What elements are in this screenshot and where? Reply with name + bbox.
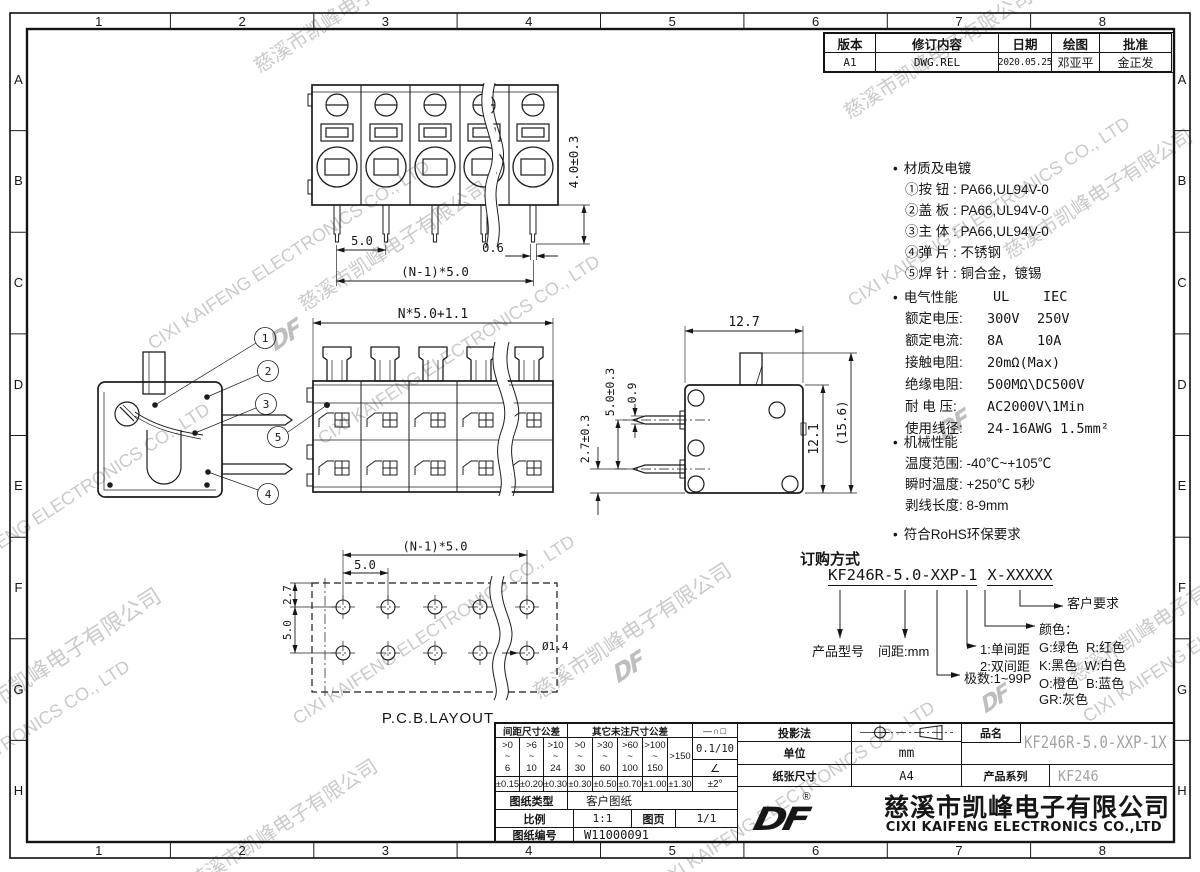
rear-view: N*5.0+1.1 xyxy=(307,307,553,496)
svg-text:2: 2 xyxy=(265,365,272,378)
pcb-dimensions: (N-1)*5.0 5.0 2.7 5.0 Ø1.4 xyxy=(281,540,569,654)
tol-value: ±1.00 xyxy=(642,776,668,792)
svg-text:0.9: 0.9 xyxy=(625,383,639,404)
svg-text:G: G xyxy=(1177,682,1187,697)
electrical-notes: •电气性能 UL IEC 额定电压:300V250V 额定电流:8A10A 接触… xyxy=(893,287,1109,440)
tol-group-other: 其它未注尺寸公差 xyxy=(567,723,693,738)
svg-text:12.1: 12.1 xyxy=(807,423,822,454)
bullet: • xyxy=(893,161,898,176)
svg-text:2.7±0.3: 2.7±0.3 xyxy=(578,415,592,464)
pcb-layout-drawing: (N-1)*5.0 5.0 2.7 5.0 Ø1.4 P.C.B.LAYOUT xyxy=(280,538,590,738)
svg-text:1: 1 xyxy=(262,332,269,345)
tol-value: ±0.50 xyxy=(592,776,618,792)
svg-text:Ø1.4: Ø1.4 xyxy=(542,640,569,653)
mechanical-item: 温度范围: -40℃~+105℃ xyxy=(893,453,1051,474)
company-logo: DF® xyxy=(750,791,811,838)
company-name-en: CIXI KAIFENG ELECTRONICS CO.,LTD xyxy=(886,820,1162,835)
doc-type-value: 客户图纸 xyxy=(567,791,738,810)
tol-range: >60 ~ 100 xyxy=(617,737,643,777)
tol-value: ±0.30 xyxy=(543,776,568,792)
electrical-title: 电气性能 xyxy=(904,290,958,305)
svg-text:5.0: 5.0 xyxy=(351,234,373,248)
tol-flatness: 0.1/10 xyxy=(692,737,738,760)
svg-text:5: 5 xyxy=(669,14,676,29)
doc-page-value: 1/1 xyxy=(675,809,738,828)
electrical-row: 绝缘电阻:500MΩ\DC500V xyxy=(893,374,1109,396)
electrical-row: 额定电压:300V250V xyxy=(893,308,1109,330)
svg-text:(N-1)*5.0: (N-1)*5.0 xyxy=(401,264,469,279)
material-title: 材质及电镀 xyxy=(904,161,972,176)
revision-content: DWG.REL xyxy=(875,52,999,72)
ordering-pitch-label: 间距:mm xyxy=(878,641,929,660)
projection-label: 投影法 xyxy=(737,723,852,742)
svg-text:3: 3 xyxy=(382,843,389,858)
mechanical-title: 机械性能 xyxy=(904,435,958,450)
doc-type-label: 图纸类型 xyxy=(495,791,568,810)
mechanical-item: 瞬时温度: +250℃ 5秒 xyxy=(893,474,1051,495)
revision-header-date: 日期 xyxy=(998,33,1052,53)
col-ul: UL xyxy=(993,287,1009,308)
svg-text:1: 1 xyxy=(95,14,102,29)
unit-label: 单位 xyxy=(737,741,852,765)
product-name-label: 品名 xyxy=(962,724,1021,743)
product-series-label: 产品系列 xyxy=(961,764,1050,787)
svg-text:N*5.0+1.1: N*5.0+1.1 xyxy=(398,307,468,322)
tol-value: ±0.30 xyxy=(567,776,593,792)
svg-text:5.0: 5.0 xyxy=(281,620,294,640)
tol-range: >10 ~ 24 xyxy=(543,737,568,777)
tol-range: >30 ~ 60 xyxy=(592,737,618,777)
pcb-layout-label: P.C.B.LAYOUT xyxy=(382,710,494,727)
break-line xyxy=(482,83,500,247)
material-item: ①按 钮 : PA66,UL94V-0 xyxy=(893,179,1049,200)
part-callouts: 1 2 3 5 4 xyxy=(152,328,330,505)
svg-text:D: D xyxy=(1177,377,1186,392)
ordering-color-option: G:绿色 R:红色 xyxy=(1039,637,1125,656)
doc-number-value: W11000091 xyxy=(573,827,738,843)
revision-header-content: 修订内容 xyxy=(875,33,999,53)
doc-scale-value: 1:1 xyxy=(573,809,632,828)
svg-text:5: 5 xyxy=(669,843,676,858)
material-item: ④弹 片 : 不锈钢 xyxy=(893,242,1049,263)
drawing-sheet: 慈溪市凯峰电子有限公司 CIXI KAIFENG ELECTRONICS CO.… xyxy=(0,0,1200,872)
revision-version: A1 xyxy=(824,52,876,72)
section-view xyxy=(98,352,292,497)
svg-text:E: E xyxy=(14,478,23,493)
svg-text:(15.6): (15.6) xyxy=(834,400,849,445)
tol-range: >150 xyxy=(667,737,693,777)
electrical-row: 额定电流:8A10A xyxy=(893,330,1109,352)
tol-range: >100 ~ 150 xyxy=(642,737,668,777)
product-name-value: KF246R-5.0-XXP-1X xyxy=(1024,733,1167,753)
company-name-cn: 慈溪市凯峰电子有限公司 xyxy=(884,788,1170,824)
svg-text:D: D xyxy=(14,377,23,392)
svg-text:8: 8 xyxy=(1099,843,1106,858)
svg-text:3: 3 xyxy=(263,398,270,411)
mechanical-item: 剥线长度: 8-9mm xyxy=(893,495,1051,516)
svg-text:4: 4 xyxy=(525,14,532,29)
unit-value: mm xyxy=(851,741,962,765)
col-iec: IEC xyxy=(1043,287,1067,308)
svg-text:4: 4 xyxy=(265,488,272,501)
tol-value: ±0.20 xyxy=(519,776,544,792)
svg-text:5: 5 xyxy=(275,431,282,444)
svg-text:G: G xyxy=(13,682,23,697)
product-series-value: KF246 xyxy=(1049,764,1175,787)
svg-text:6: 6 xyxy=(812,843,819,858)
title-block: 间距尺寸公差 其它未注尺寸公差 >0 ~ 6 >6 ~ 10 >10 ~ 24 … xyxy=(494,722,1174,842)
revision-date: 2020.05.25 xyxy=(998,52,1052,72)
revision-table: 版本 修订内容 日期 绘图 批准 A1 DWG.REL 2020.05.25 邓… xyxy=(823,32,1174,73)
bullet: • xyxy=(893,290,898,305)
bullet: • xyxy=(893,527,898,542)
tol-range: >0 ~ 6 xyxy=(495,737,520,777)
product-name-area: 品名 KF246R-5.0-XXP-1X xyxy=(961,723,1175,765)
projection-symbol xyxy=(851,723,962,742)
svg-text:C: C xyxy=(14,275,23,290)
front-view-drawing: 5.0 0.6 (N-1)*5.0 4.0±0.3 xyxy=(300,78,610,292)
material-notes: •材质及电镀 ①按 钮 : PA66,UL94V-0 ②盖 板 : PA66,U… xyxy=(893,158,1049,284)
svg-text:5.0±0.3: 5.0±0.3 xyxy=(603,368,617,417)
tol-symbols-geo: —∩□ xyxy=(692,723,738,738)
tol-angle-value: ±2° xyxy=(692,776,738,792)
ordering-spacing2-label: 2:双间距 xyxy=(980,656,1030,675)
svg-text:2: 2 xyxy=(238,14,245,29)
svg-text:4: 4 xyxy=(525,843,532,858)
tol-range: >0 ~ 30 xyxy=(567,737,593,777)
tol-value: ±1.30 xyxy=(667,776,693,792)
tol-value: ±0.70 xyxy=(617,776,643,792)
doc-scale-label: 比例 xyxy=(495,809,574,828)
material-item: ⑤焊 针 : 铜合金，镀锡 xyxy=(893,263,1049,284)
electrical-row: 接触电阻:20mΩ(Max) xyxy=(893,352,1109,374)
revision-header-version: 版本 xyxy=(824,33,876,53)
svg-text:7: 7 xyxy=(955,843,962,858)
mechanical-notes: •机械性能 温度范围: -40℃~+105℃ 瞬时温度: +250℃ 5秒 剥线… xyxy=(893,432,1051,516)
material-item: ②盖 板 : PA66,UL94V-0 xyxy=(893,200,1049,221)
revision-approved: 金正发 xyxy=(1099,52,1172,72)
svg-text:0.6: 0.6 xyxy=(482,241,504,255)
tol-group-pitch: 间距尺寸公差 xyxy=(495,723,568,738)
ordering-section: 订购方式 KF246R-5.0-XXP-1X-XXXXX 产品型号 间距:mm … xyxy=(790,542,1174,717)
svg-text:5.0: 5.0 xyxy=(354,558,376,572)
svg-text:8: 8 xyxy=(1099,14,1106,29)
paper-size-label: 纸张尺寸 xyxy=(737,764,852,787)
svg-text:A: A xyxy=(14,72,23,87)
bullet: • xyxy=(893,435,898,450)
ordering-color-option: K:黑色 W:白色 xyxy=(1039,655,1126,674)
ordering-model-label: 产品型号 xyxy=(812,641,864,660)
revision-drawn: 邓亚平 xyxy=(1051,52,1100,72)
ordering-color-option: GR:灰色 xyxy=(1039,689,1088,708)
svg-text:B: B xyxy=(14,173,23,188)
svg-text:B: B xyxy=(1178,173,1187,188)
terminal-positions xyxy=(317,94,553,187)
svg-text:4.0±0.3: 4.0±0.3 xyxy=(566,136,581,189)
doc-number-label: 图纸编号 xyxy=(495,827,574,843)
svg-text:F: F xyxy=(1178,580,1186,595)
svg-text:F: F xyxy=(15,580,23,595)
svg-text:2: 2 xyxy=(238,843,245,858)
side-view: 12.7 5.0±0.3 0.9 12.1 (15.6) 2.7±0.3 xyxy=(578,315,857,515)
svg-text:C: C xyxy=(1177,275,1186,290)
tol-range: >6 ~ 10 xyxy=(519,737,544,777)
svg-text:1: 1 xyxy=(95,843,102,858)
svg-text:A: A xyxy=(1178,72,1187,87)
paper-size-value: A4 xyxy=(851,764,962,787)
svg-text:2.7: 2.7 xyxy=(281,585,294,605)
doc-page-label: 图页 xyxy=(631,809,676,828)
svg-text:E: E xyxy=(1178,478,1187,493)
ordering-customer-label: 客户要求 xyxy=(1067,593,1119,612)
front-view-dimensions: 5.0 0.6 (N-1)*5.0 4.0±0.3 xyxy=(337,136,590,286)
svg-text:3: 3 xyxy=(382,14,389,29)
revision-header-approved: 批准 xyxy=(1099,33,1172,53)
svg-text:H: H xyxy=(14,783,23,798)
tol-value: ±0.15 xyxy=(495,776,520,792)
svg-text:7: 7 xyxy=(955,14,962,29)
svg-text:6: 6 xyxy=(812,14,819,29)
svg-text:(N-1)*5.0: (N-1)*5.0 xyxy=(402,540,467,554)
revision-header-drawn: 绘图 xyxy=(1051,33,1100,53)
ordering-color-title: 颜色： xyxy=(1039,619,1078,638)
angle-symbol: ∠ xyxy=(692,759,738,777)
svg-text:12.7: 12.7 xyxy=(728,315,759,330)
material-item: ③主 体 : PA66,UL94V-0 xyxy=(893,221,1049,242)
svg-text:H: H xyxy=(1177,783,1186,798)
electrical-row: 耐 电 压:AC2000V\1Min xyxy=(893,396,1109,418)
company-strip: DF® 慈溪市凯峰电子有限公司 CIXI KAIFENG ELECTRONICS… xyxy=(737,786,1175,843)
